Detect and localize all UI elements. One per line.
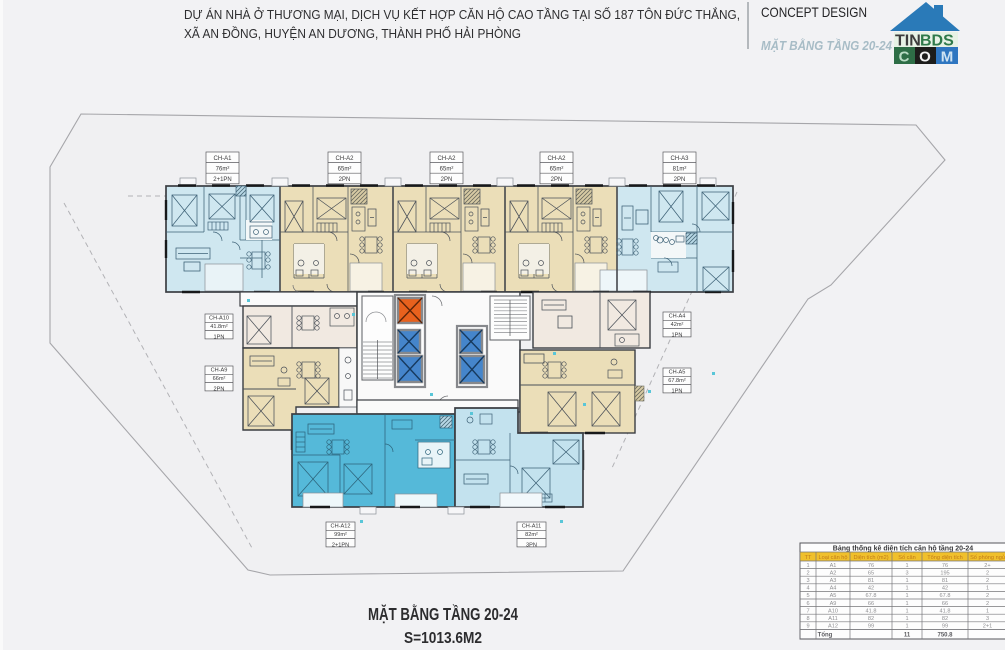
svg-text:81: 81: [942, 578, 948, 584]
svg-text:A12: A12: [828, 624, 838, 630]
svg-text:A3: A3: [830, 578, 837, 584]
svg-text:DỰ ÁN NHÀ Ở THƯƠNG MẠI, DỊCH V: DỰ ÁN NHÀ Ở THƯƠNG MẠI, DỊCH VỤ KẾT HỢP …: [184, 7, 740, 22]
svg-text:1: 1: [905, 624, 908, 630]
svg-text:99: 99: [942, 624, 948, 630]
svg-text:S=1013.6M2: S=1013.6M2: [404, 630, 482, 647]
svg-text:42: 42: [868, 586, 874, 592]
svg-text:2: 2: [986, 578, 989, 584]
svg-text:81m²: 81m²: [673, 167, 687, 173]
svg-text:76m²: 76m²: [216, 167, 230, 173]
svg-text:3: 3: [986, 616, 989, 622]
svg-text:65m²: 65m²: [338, 167, 352, 173]
svg-text:76: 76: [868, 563, 874, 569]
svg-text:76: 76: [942, 563, 948, 569]
svg-text:CH-A11: CH-A11: [522, 524, 541, 530]
svg-text:82: 82: [868, 616, 874, 622]
svg-text:67.8: 67.8: [940, 593, 951, 599]
svg-text:6: 6: [806, 601, 809, 607]
svg-text:2+1PN: 2+1PN: [332, 543, 349, 549]
svg-text:CH-A10: CH-A10: [209, 316, 229, 322]
svg-text:3: 3: [806, 578, 809, 584]
svg-text:41.8m²: 41.8m²: [210, 324, 228, 330]
svg-text:CONCEPT DESIGN: CONCEPT DESIGN: [761, 5, 867, 20]
svg-text:Tổng: Tổng: [818, 631, 833, 638]
svg-text:2: 2: [986, 593, 989, 599]
svg-text:3PN: 3PN: [526, 543, 537, 549]
svg-text:O: O: [919, 49, 931, 66]
svg-text:66: 66: [942, 601, 948, 607]
svg-text:1: 1: [905, 608, 908, 614]
svg-text:1: 1: [905, 586, 908, 592]
svg-text:1: 1: [905, 578, 908, 584]
svg-text:1: 1: [905, 593, 908, 599]
svg-text:XÃ AN ĐỒNG, HUYỆN AN DƯƠNG, TH: XÃ AN ĐỒNG, HUYỆN AN DƯƠNG, THÀNH PHỐ HẢ…: [184, 26, 521, 41]
svg-text:Loại căn hộ: Loại căn hộ: [819, 555, 848, 561]
svg-text:CH-A2: CH-A2: [547, 156, 566, 162]
svg-text:2PN: 2PN: [674, 177, 686, 183]
svg-text:8: 8: [806, 616, 809, 622]
svg-text:1: 1: [905, 616, 908, 622]
svg-text:1PN: 1PN: [672, 333, 683, 339]
svg-text:195: 195: [940, 570, 949, 576]
svg-text:2PN: 2PN: [441, 177, 453, 183]
svg-text:41.8: 41.8: [940, 608, 951, 614]
svg-text:750.8: 750.8: [937, 632, 953, 638]
svg-text:1: 1: [986, 608, 989, 614]
svg-text:7: 7: [806, 608, 809, 614]
svg-text:MẶT BẰNG TẦNG 20-24: MẶT BẰNG TẦNG 20-24: [368, 603, 518, 624]
svg-text:65: 65: [868, 570, 874, 576]
svg-text:1: 1: [986, 586, 989, 592]
svg-text:A4: A4: [830, 586, 837, 592]
svg-text:2: 2: [986, 601, 989, 607]
svg-text:82m²: 82m²: [525, 532, 538, 538]
svg-text:CH-A2: CH-A2: [437, 156, 456, 162]
svg-text:A2: A2: [830, 570, 837, 576]
svg-text:CH-A5: CH-A5: [669, 370, 686, 376]
svg-text:Tổng diện tích: Tổng diện tích: [927, 554, 962, 561]
svg-text:99m²: 99m²: [334, 532, 347, 538]
svg-text:C: C: [899, 49, 910, 66]
svg-text:A10: A10: [828, 608, 838, 614]
svg-text:MẶT BẰNG TẦNG 20-24: MẶT BẰNG TẦNG 20-24: [761, 38, 893, 53]
svg-text:2+1PN: 2+1PN: [213, 177, 232, 183]
svg-text:Số căn: Số căn: [898, 555, 915, 561]
svg-text:M: M: [941, 49, 954, 66]
svg-text:A5: A5: [830, 593, 837, 599]
svg-text:9: 9: [806, 624, 809, 630]
svg-text:1PN: 1PN: [672, 389, 683, 395]
svg-text:67.8m²: 67.8m²: [668, 378, 686, 384]
svg-text:11: 11: [904, 632, 911, 638]
svg-text:99: 99: [868, 624, 874, 630]
svg-text:CH-A3: CH-A3: [670, 156, 689, 162]
svg-text:CH-A1: CH-A1: [213, 156, 232, 162]
svg-text:CH-A4: CH-A4: [669, 314, 686, 320]
svg-text:2: 2: [986, 570, 989, 576]
svg-text:82: 82: [942, 616, 948, 622]
svg-text:2+: 2+: [984, 563, 990, 569]
svg-text:1: 1: [806, 563, 809, 569]
svg-text:1: 1: [905, 563, 908, 569]
svg-text:67.8: 67.8: [866, 593, 877, 599]
svg-text:TIN: TIN: [895, 33, 921, 50]
svg-text:Diện tích (m2): Diện tích (m2): [853, 555, 888, 561]
svg-text:CH-A9: CH-A9: [211, 368, 228, 374]
svg-text:2PN: 2PN: [551, 177, 563, 183]
svg-text:66m²: 66m²: [213, 376, 226, 382]
svg-text:Bảng thống kê diện tích căn hộ: Bảng thống kê diện tích căn hộ tầng 20-2…: [833, 544, 974, 553]
svg-text:4: 4: [806, 586, 809, 592]
svg-text:BDS: BDS: [920, 33, 954, 50]
svg-text:CH-A2: CH-A2: [335, 156, 354, 162]
svg-text:2: 2: [806, 570, 809, 576]
svg-text:2+1: 2+1: [983, 624, 993, 630]
svg-text:66: 66: [868, 601, 874, 607]
svg-text:1: 1: [905, 601, 908, 607]
svg-text:A11: A11: [828, 616, 838, 622]
svg-text:42m²: 42m²: [671, 322, 684, 328]
svg-text:41.8: 41.8: [866, 608, 877, 614]
svg-text:TT: TT: [805, 555, 812, 561]
svg-text:3: 3: [905, 570, 908, 576]
svg-text:81: 81: [868, 578, 874, 584]
svg-text:A9: A9: [830, 601, 837, 607]
svg-text:42: 42: [942, 586, 948, 592]
svg-text:5: 5: [806, 593, 809, 599]
svg-text:1PN: 1PN: [214, 335, 225, 341]
svg-text:2PN: 2PN: [214, 387, 225, 393]
svg-text:CH-A12: CH-A12: [331, 524, 351, 530]
svg-text:Số phòng ngủ: Số phòng ngủ: [970, 554, 1005, 561]
svg-text:2PN: 2PN: [339, 177, 351, 183]
svg-text:A1: A1: [830, 563, 837, 569]
svg-text:65m²: 65m²: [550, 167, 564, 173]
svg-text:65m²: 65m²: [440, 167, 454, 173]
